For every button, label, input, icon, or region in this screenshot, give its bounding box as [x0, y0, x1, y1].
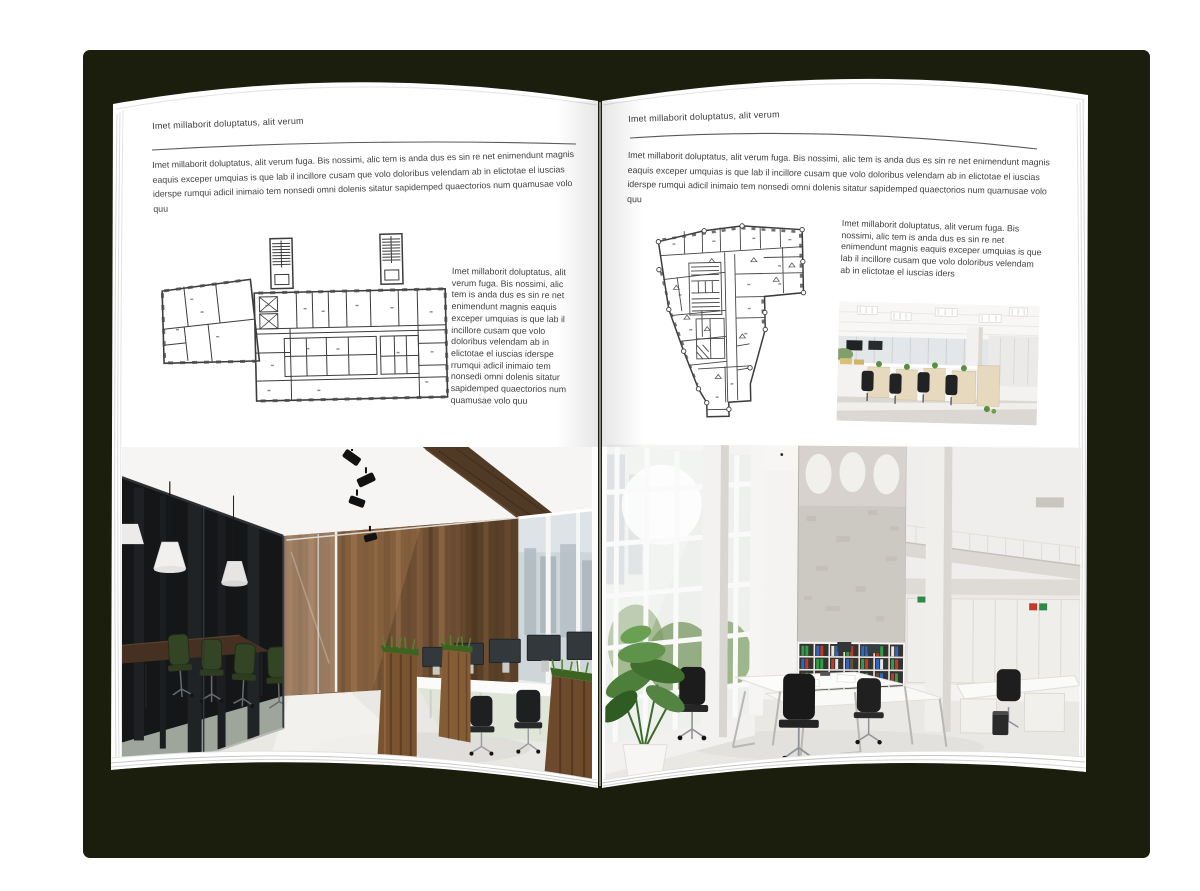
photo-left-office-interior — [122, 447, 592, 786]
right-page-side-text: Imet millaborit doluptatus, alit verum f… — [840, 218, 1046, 283]
spine-shadow-right — [600, 101, 644, 447]
photo-right-office-interior — [605, 444, 1081, 789]
floor-plan-left — [154, 231, 456, 426]
spine-shadow-left — [556, 101, 600, 447]
floor-plan-right — [642, 216, 838, 420]
brochure-mockup: Imet millaborit doluptatus, alit verum I… — [0, 0, 1200, 891]
photo-small-office — [837, 302, 1040, 426]
right-page-intro: Imet millaborit doluptatus, alit verum f… — [627, 148, 1052, 214]
left-page-intro: Imet millaborit doluptatus, alit verum f… — [152, 147, 585, 217]
